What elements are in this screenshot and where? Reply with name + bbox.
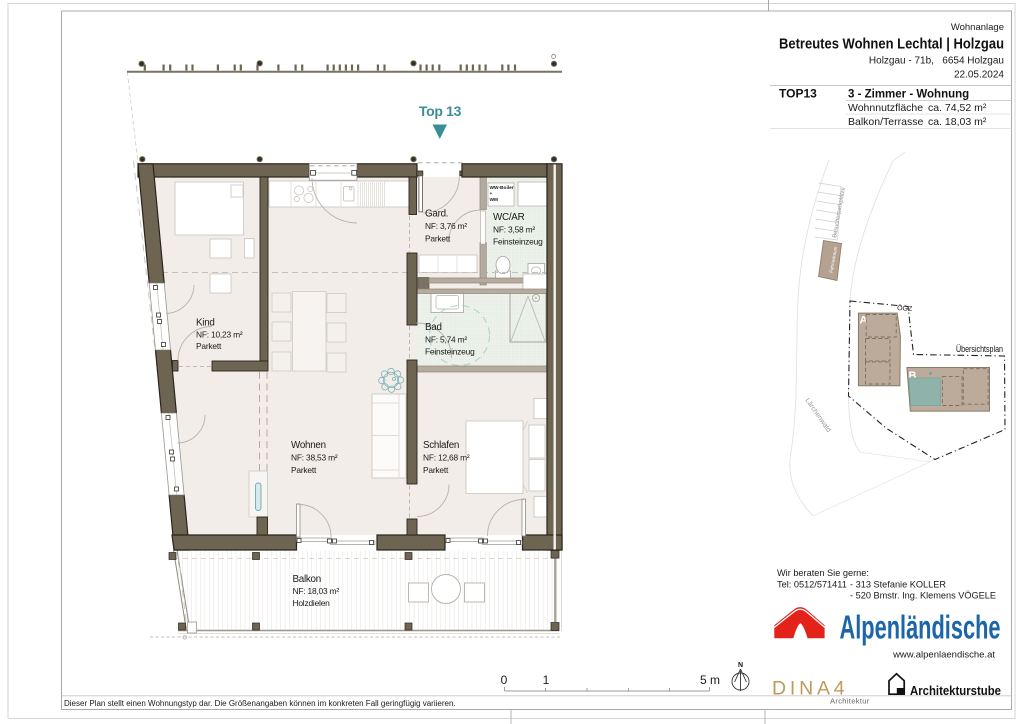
svg-text:www.alpenlaendische.at: www.alpenlaendische.at: [892, 650, 995, 661]
svg-text:Wohnnutzfläche: Wohnnutzfläche: [848, 102, 923, 114]
svg-text:Balkon/Terrasse: Balkon/Terrasse: [848, 116, 923, 128]
svg-text:Alpenländische: Alpenländische: [840, 609, 1001, 646]
svg-text:Parkett: Parkett: [425, 234, 451, 244]
svg-text:- 313 Stefanie KOLLER: - 313 Stefanie KOLLER: [850, 580, 946, 590]
svg-text:Balkon: Balkon: [293, 574, 321, 585]
svg-text:3 - Zimmer - Wohnung: 3 - Zimmer - Wohnung: [848, 89, 969, 101]
svg-text:Parkett: Parkett: [196, 341, 222, 351]
svg-text:Dieser Plan stellt einen Wohnu: Dieser Plan stellt einen Wohnungstyp dar…: [64, 699, 456, 708]
svg-text:Wohnen: Wohnen: [291, 440, 326, 451]
svg-text:Feinsteinzeug: Feinsteinzeug: [493, 237, 543, 247]
svg-text:Parkett: Parkett: [423, 465, 449, 475]
svg-text:NF: 5,74 m²: NF: 5,74 m²: [425, 335, 467, 345]
svg-text:WW-Boiler: WW-Boiler: [490, 185, 514, 191]
svg-text:22.05.2024: 22.05.2024: [954, 70, 1004, 81]
svg-text:Tel: 0512/571411: Tel: 0512/571411: [777, 580, 847, 590]
svg-text:1: 1: [543, 673, 550, 687]
svg-text:Feinsteinzeug: Feinsteinzeug: [425, 347, 475, 357]
svg-text:Wohnanlage: Wohnanlage: [951, 22, 1004, 33]
svg-text:NF: 12,68 m²: NF: 12,68 m²: [423, 453, 470, 463]
svg-text:+: +: [490, 192, 493, 197]
svg-text:WM: WM: [490, 197, 499, 203]
svg-text:Gard.: Gard.: [425, 209, 448, 220]
svg-text:ÖGZ: ÖGZ: [897, 304, 913, 313]
svg-text:Übersichtsplan: Übersichtsplan: [956, 344, 1003, 354]
svg-text:WC/AR: WC/AR: [493, 212, 525, 223]
svg-text:ca. 74,52 m²: ca. 74,52 m²: [928, 102, 987, 114]
svg-text:Parkett: Parkett: [291, 465, 317, 475]
svg-text:N: N: [738, 662, 743, 669]
svg-text:NF: 10,23 m²: NF: 10,23 m²: [196, 330, 243, 340]
svg-text:Schlafen: Schlafen: [423, 440, 459, 451]
svg-text:Bad: Bad: [425, 322, 442, 333]
svg-text:NF: 38,53 m²: NF: 38,53 m²: [291, 453, 338, 463]
svg-text:Architektur: Architektur: [830, 697, 870, 706]
svg-text:5 m: 5 m: [700, 673, 720, 687]
svg-text:Holzgau - 71b, 6654 Holzgau: Holzgau - 71b, 6654 Holzgau: [869, 56, 1004, 67]
svg-text:0: 0: [501, 673, 508, 687]
svg-text:Holzdielen: Holzdielen: [293, 598, 331, 608]
svg-text:Top 13: Top 13: [419, 103, 462, 119]
svg-text:Wir beraten Sie gerne:: Wir beraten Sie gerne:: [777, 568, 869, 578]
svg-text:ca. 18,03 m²: ca. 18,03 m²: [928, 116, 987, 128]
svg-text:NF: 3,76 m²: NF: 3,76 m²: [425, 221, 467, 231]
svg-text:- 520 Bmstr. Ing. Klemens VÖGE: - 520 Bmstr. Ing. Klemens VÖGELE: [850, 591, 996, 601]
svg-text:Architekturstube: Architekturstube: [910, 683, 1001, 698]
svg-text:TOP13: TOP13: [779, 87, 817, 101]
svg-text:Betreutes Wohnen Lechtal | Hol: Betreutes Wohnen Lechtal | Holzgau: [779, 37, 1004, 53]
svg-text:NF: 18,03 m²: NF: 18,03 m²: [293, 586, 340, 596]
svg-text:NF: 3,58 m²: NF: 3,58 m²: [493, 225, 535, 235]
svg-text:Kind: Kind: [196, 318, 215, 329]
